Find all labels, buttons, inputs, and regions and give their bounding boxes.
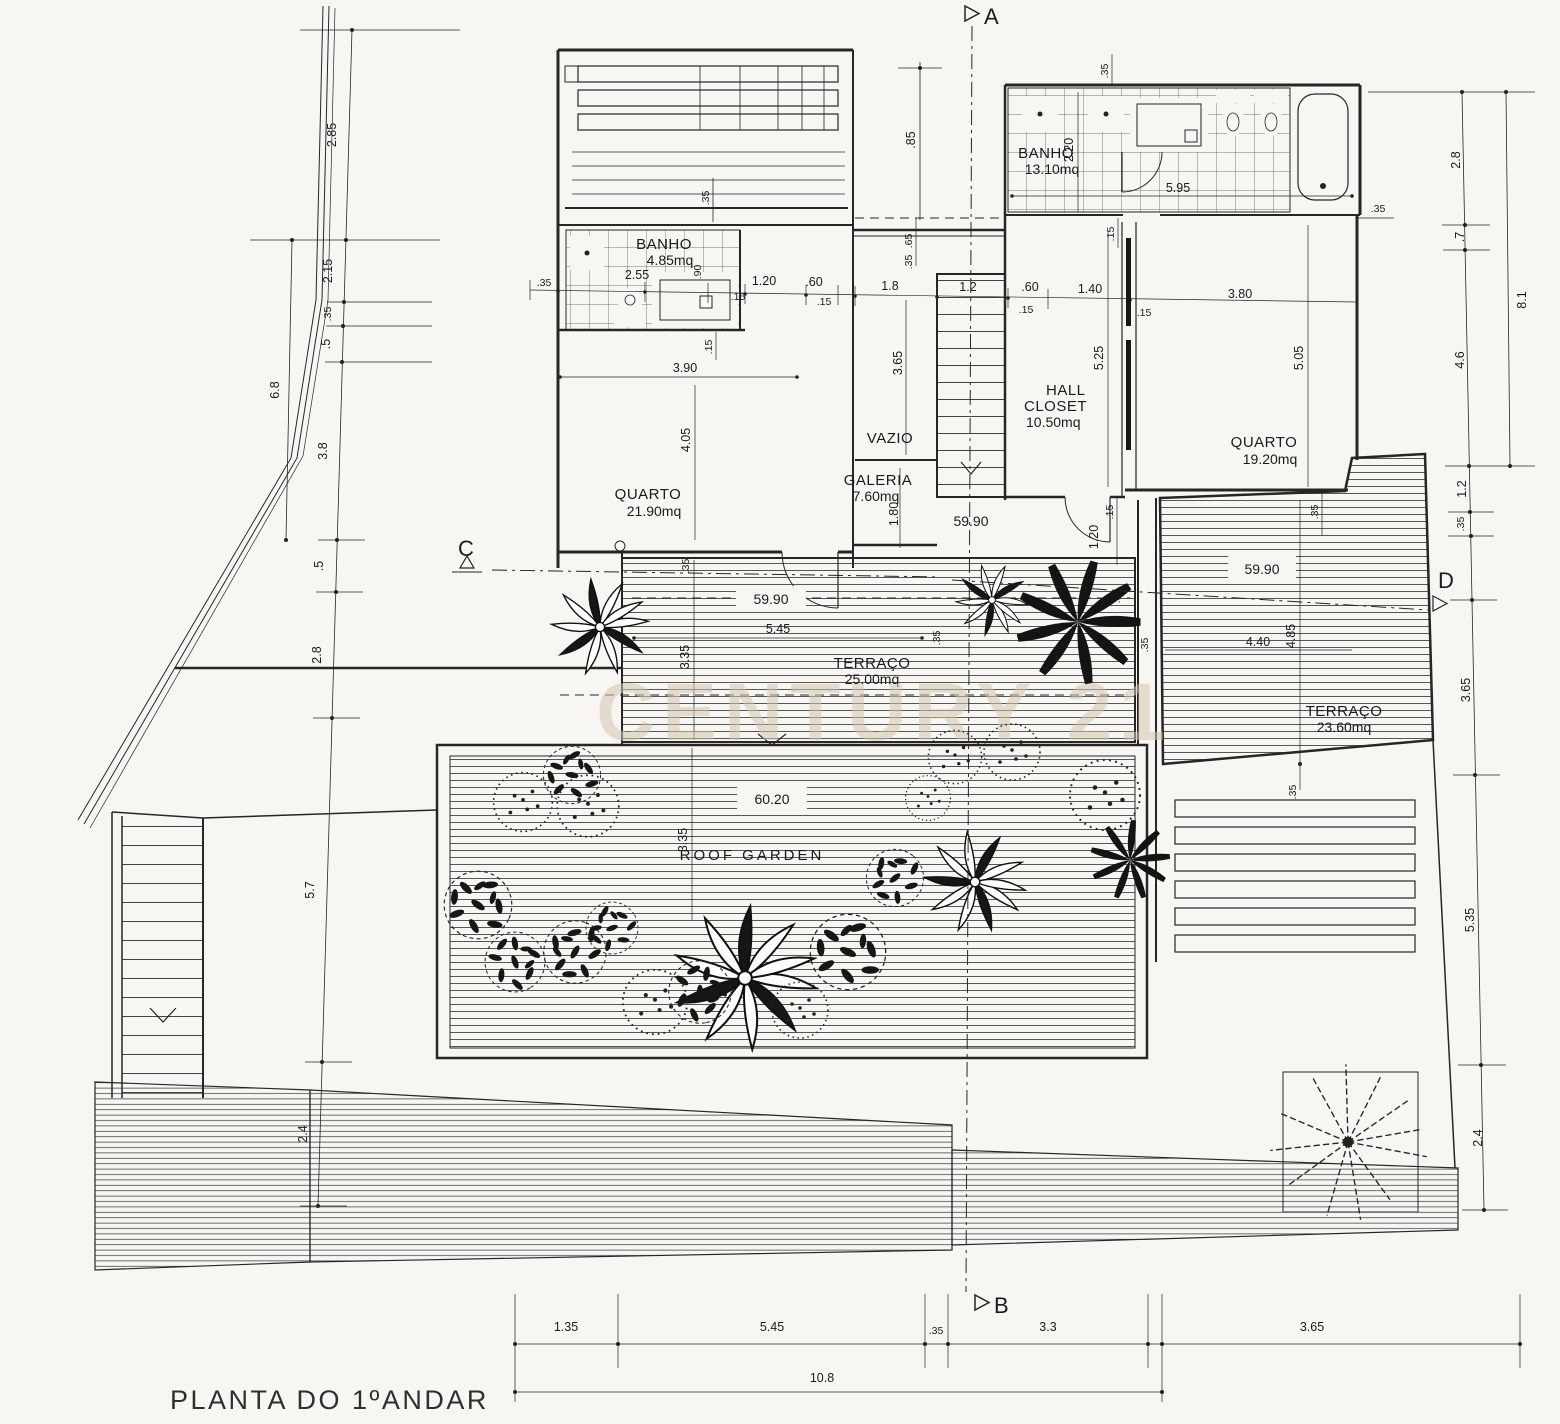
banho-large: BANHO 13.10mq 2.20 5.95 .35 .35 .15	[1005, 54, 1394, 500]
dim-terr-545: 5.45	[766, 622, 790, 636]
property-boundary	[78, 6, 335, 828]
dim-mid-15: .15	[703, 340, 715, 355]
dim-mid-65: .65	[903, 234, 915, 249]
section-b-label: B	[994, 1293, 1009, 1318]
banho-small-area: 4.85mq	[647, 252, 694, 268]
dim-right-28: 2.8	[1449, 151, 1463, 168]
dim-left-285: 2.85	[325, 123, 339, 147]
dim-top-15: .15	[1105, 227, 1117, 242]
terraco-right-area: 23.60mq	[1317, 719, 1371, 735]
section-b-triangle-icon	[975, 1295, 989, 1310]
banho-large-area: 13.10mq	[1025, 161, 1079, 177]
section-a-label: A	[984, 4, 999, 29]
dim-row-15d: .15	[1137, 307, 1152, 319]
dim-terr-35d: .35	[1287, 785, 1299, 800]
dim-right-7: .7	[1453, 232, 1467, 242]
dim-left-38: 3.8	[316, 442, 330, 459]
section-a-triangle-icon	[965, 6, 979, 21]
level-terrace-mid: 59.90	[753, 591, 788, 607]
dim-terr-35a: .35	[680, 559, 692, 574]
dim-row-15a: .15	[731, 291, 746, 303]
dim-terr-440: 4.40	[1246, 635, 1270, 649]
shower-icon	[652, 272, 738, 328]
dim-mid-180: 1.80	[887, 502, 901, 526]
quarto-right-area: 19.20mq	[1243, 451, 1297, 467]
dim-row-140: 1.40	[1078, 282, 1102, 296]
dim-mid-390: 3.90	[673, 361, 697, 375]
dim-top-85: .85	[904, 131, 918, 148]
sink-icon	[1088, 96, 1124, 132]
dim-right-24: 2.4	[1471, 1129, 1485, 1146]
dim-row-120: 1.20	[752, 274, 776, 288]
center-core: .85 .65 .35 3.65 VAZIO GALERIA 7.60mq 1.…	[844, 62, 1005, 548]
dim-mid-35a: .35	[903, 255, 915, 270]
vazio-label: VAZIO	[867, 430, 913, 447]
banho-small: BANHO 4.85mq	[558, 230, 745, 330]
dim-terr-35b: .35	[931, 631, 943, 646]
sink-icon	[570, 236, 604, 270]
dim-bottom-545: 5.45	[760, 1320, 784, 1334]
dim-left-68: 6.8	[268, 381, 282, 398]
dim-row-18: 1.8	[881, 279, 898, 293]
dim-left-5a: .5	[319, 339, 333, 349]
dim-bottom-135: 1.35	[554, 1320, 578, 1334]
section-d-label: D	[1438, 568, 1454, 593]
dim-row-35: .35	[537, 277, 552, 289]
dim-row-380: 3.80	[1228, 287, 1252, 301]
dim-mid-15b: .15	[1104, 505, 1116, 520]
right-lower-strip	[1156, 740, 1455, 1212]
dim-right-46: 4.6	[1453, 351, 1467, 368]
galeria-name: GALERIA	[844, 472, 913, 489]
quarto-right-name: QUARTO	[1231, 434, 1298, 451]
dim-top-220: 2.20	[1062, 138, 1076, 162]
dim-row-15c: .15	[1019, 304, 1034, 316]
dim-mid-405: 4.05	[679, 428, 693, 452]
terrace-right: 59.90 4.40 4.85 .35 TERRAÇO 23.60mq	[1160, 454, 1433, 799]
roof-garden-label: ROOF GARDEN	[680, 847, 825, 864]
galeria-area: 7.60mq	[853, 488, 900, 504]
dim-right-365: 3.65	[1459, 678, 1473, 702]
dim-row-60a: .60	[805, 275, 822, 289]
dim-left-28: 2.8	[310, 646, 324, 663]
page-title: PLANTA DO 1ºANDAR	[170, 1385, 489, 1415]
louver-roof	[565, 66, 848, 208]
dim-right-12: 1.2	[1455, 480, 1469, 497]
floor-plan-page: 2.85 2.15 .35 .5 6.8 3.8 .5 2.8 5.7 2.4 …	[0, 0, 1560, 1424]
dim-right-535: 5.35	[1463, 908, 1477, 932]
quarto-left-name: QUARTO	[615, 486, 682, 503]
floor-plan-drawing: 2.85 2.15 .35 .5 6.8 3.8 .5 2.8 5.7 2.4 …	[0, 0, 1560, 1424]
dim-bottom-35: .35	[929, 1325, 944, 1337]
dim-top-35r: .35	[1371, 203, 1386, 215]
dim-mid-505: 5.05	[1292, 346, 1306, 370]
dim-top-35t: .35	[1099, 64, 1111, 79]
dim-row-90: .90	[692, 265, 704, 280]
dim-terr-485: 4.85	[1284, 624, 1298, 648]
dim-bottom-108: 10.8	[810, 1371, 834, 1385]
dim-terr-35f: .35	[1139, 638, 1151, 653]
dim-mid-525: 5.25	[1092, 346, 1106, 370]
dim-terr-335b: 3.35	[676, 828, 690, 852]
hall-closet-line2: CLOSET	[1024, 398, 1087, 415]
banho-small-name: BANHO	[636, 236, 692, 253]
dim-left-215: 2.15	[321, 259, 335, 283]
section-d-triangle-icon	[1433, 596, 1447, 611]
bathtub-icon	[1292, 88, 1354, 206]
bottom-dim-chain: 1.35 5.45 .35 3.3 3.65 10.8	[513, 1294, 1522, 1402]
dim-right-81: 8.1	[1515, 291, 1529, 308]
dim-mid-365: 3.65	[891, 351, 905, 375]
dim-bottom-365: 3.65	[1300, 1320, 1324, 1334]
bottom-bands	[95, 1082, 1458, 1270]
dim-louver-35: .35	[700, 191, 712, 206]
dim-terr-335: 3.35	[678, 645, 692, 669]
dim-bottom-33: 3.3	[1039, 1320, 1056, 1334]
dim-row-60b: .60	[1021, 280, 1038, 294]
hall-closet-line1: HALL	[1046, 382, 1086, 399]
sink-icon	[1022, 96, 1058, 132]
hall-closet-area: 10.50mq	[1026, 414, 1080, 430]
level-terrace-right: 59.90	[1244, 561, 1279, 577]
dim-mid-120: 1.20	[1087, 525, 1101, 549]
dim-left-35: .35	[322, 307, 334, 322]
quarto-left-area: 21.90mq	[627, 503, 681, 519]
dim-row-15b: .15	[817, 296, 832, 308]
level-stair: 59.90	[953, 513, 988, 529]
dim-row-255: 2.55	[625, 268, 649, 282]
shower-icon	[1130, 98, 1208, 152]
dim-left-5b: .5	[312, 561, 326, 571]
terraco-right-name: TERRAÇO	[1306, 703, 1383, 720]
dim-right-35: .35	[1455, 517, 1467, 532]
dim-top-595: 5.95	[1166, 181, 1190, 195]
roof-garden: 60.20 ROOF GARDEN 3.35	[437, 745, 1147, 1058]
dim-left-57: 5.7	[303, 881, 317, 898]
level-roof: 60.20	[754, 791, 789, 807]
